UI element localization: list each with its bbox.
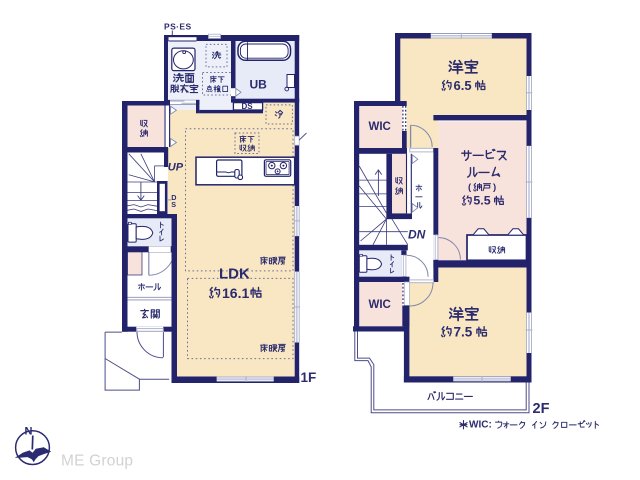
svg-text:DS: DS bbox=[242, 102, 254, 111]
svg-text:WIC: WIC bbox=[369, 121, 391, 133]
svg-text:LDK: LDK bbox=[219, 266, 250, 283]
svg-text:WIC: WIC bbox=[369, 299, 391, 311]
svg-text:S: S bbox=[171, 200, 176, 209]
svg-text:N: N bbox=[25, 426, 33, 438]
svg-text:PS·ES: PS·ES bbox=[164, 21, 192, 31]
svg-text:UP: UP bbox=[168, 162, 184, 174]
svg-text:16.1: 16.1 bbox=[222, 285, 249, 301]
svg-text:2F: 2F bbox=[533, 401, 550, 417]
svg-text:1F: 1F bbox=[301, 370, 317, 385]
svg-text:6.5: 6.5 bbox=[454, 78, 472, 93]
svg-text:5.5: 5.5 bbox=[473, 194, 490, 208]
svg-text:WIC:: WIC: bbox=[469, 420, 492, 431]
svg-text:UB: UB bbox=[250, 78, 268, 92]
svg-text:): ) bbox=[493, 182, 496, 193]
svg-text:DN: DN bbox=[408, 227, 426, 241]
svg-text:7.5: 7.5 bbox=[454, 324, 473, 339]
svg-text:ME Group: ME Group bbox=[61, 453, 133, 470]
